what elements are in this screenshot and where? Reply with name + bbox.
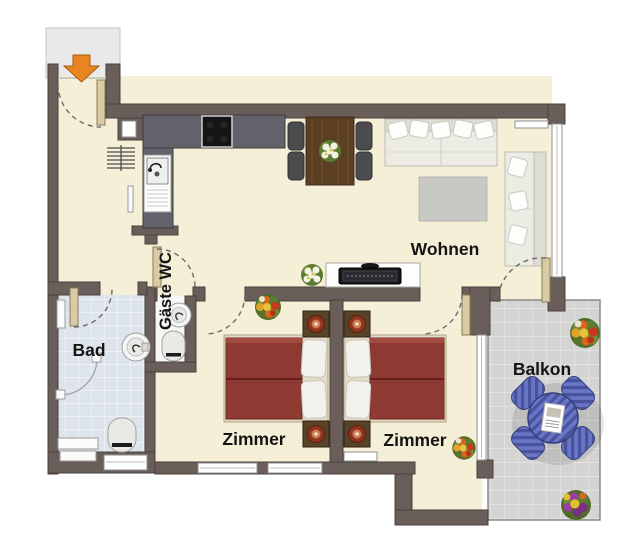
cooktop (202, 116, 232, 147)
toilet (162, 331, 185, 361)
counter-handle (128, 186, 133, 212)
door-leaf (70, 288, 78, 326)
pillow (345, 380, 371, 418)
flower-pot (255, 294, 281, 320)
bath-shelf (58, 438, 98, 449)
room-label-bedroom1: Zimmer (222, 429, 285, 449)
room-label-living: Wohnen (411, 239, 480, 259)
nightstand (344, 421, 370, 447)
pillow (508, 190, 528, 211)
pillow (301, 380, 327, 418)
rug (419, 177, 487, 221)
floor-plan: Wohnen Bad Gäste WC Zimmer Zimmer Balkon (0, 0, 640, 557)
magazine (541, 403, 565, 434)
room-label-bedroom2: Zimmer (383, 430, 446, 450)
room-label-guest-wc: Gäste WC (157, 252, 175, 330)
toilet (108, 418, 136, 452)
pillow (507, 224, 528, 246)
bed (224, 335, 328, 422)
flower-pot (561, 490, 591, 520)
sofa (385, 119, 497, 166)
pillow (345, 339, 371, 377)
washbasin (122, 333, 150, 361)
radiator (57, 300, 65, 328)
shower-door-post (56, 390, 65, 399)
dining-chair (356, 122, 372, 150)
flower-bouquet (319, 140, 341, 162)
dining-chair (288, 122, 304, 150)
pillow (301, 339, 327, 377)
window-sill (344, 452, 377, 461)
pillow (473, 120, 494, 140)
door-leaf (462, 295, 470, 335)
bath-shelf (60, 451, 96, 461)
door-leaf (542, 258, 550, 302)
nightstand (303, 421, 329, 447)
pillow (453, 119, 474, 138)
wall-niche (122, 121, 136, 137)
pillow (409, 120, 430, 139)
wall-shelf (515, 121, 548, 128)
room-label-bath: Bad (72, 340, 105, 360)
dining-chair (288, 152, 304, 180)
pillow (431, 121, 452, 140)
door-leaf (97, 80, 105, 125)
dining-chair (356, 152, 372, 180)
flower-pot (570, 318, 600, 348)
flower-pot (452, 436, 475, 459)
flower-bouquet (301, 264, 323, 286)
sofa (505, 152, 546, 266)
nightstand (303, 311, 329, 337)
nightstand (344, 311, 370, 337)
room-label-balcony: Balkon (513, 359, 571, 379)
bed (344, 335, 446, 422)
